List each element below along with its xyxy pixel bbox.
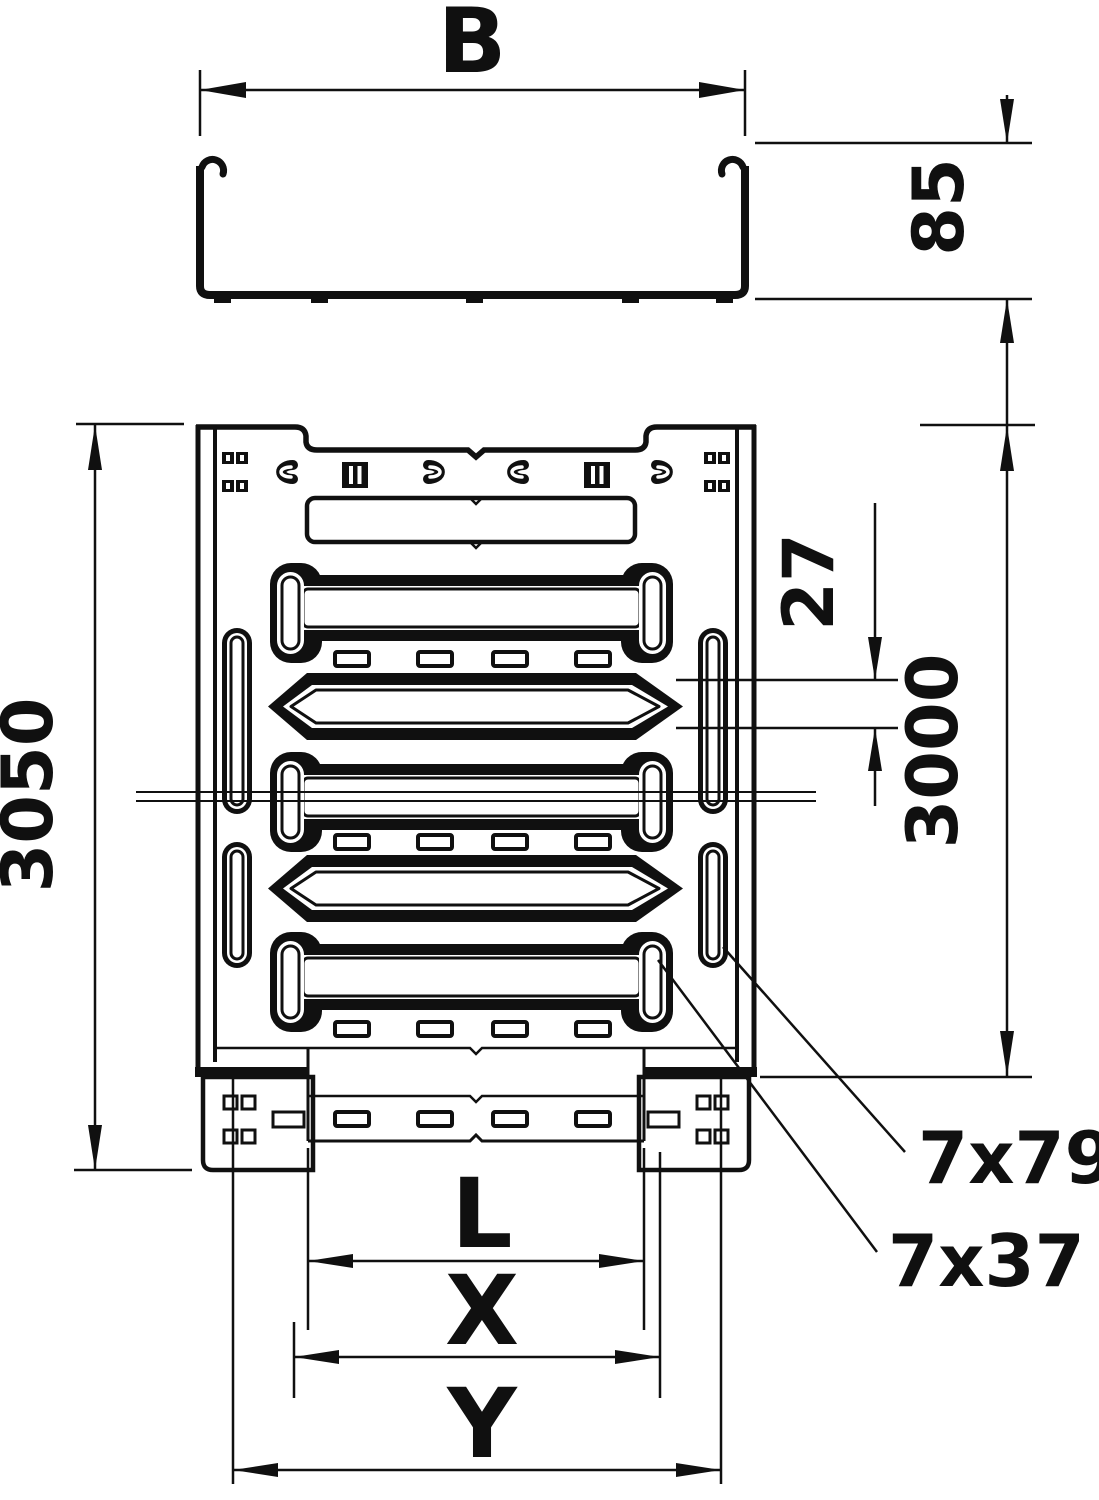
dimension-3050-label: 3050 (0, 698, 69, 893)
right-hook-rim (721, 159, 743, 174)
leader-7x79-label: 7x79 (918, 1116, 1099, 1200)
dimension-y-label: Y (446, 1368, 518, 1480)
dimension-b: B (200, 0, 745, 136)
dimension-l-label: L (451, 1158, 512, 1270)
tray-end-line (216, 1048, 736, 1054)
coupler-bottom-edge (308, 1135, 644, 1141)
dimension-3050: 3050 (0, 424, 192, 1170)
cable-tray-drawing: B 85 (0, 0, 1099, 1500)
dimension-85: 85 (755, 95, 1032, 425)
press-out-glyph-row (281, 462, 668, 488)
leader-7x37-label: 7x37 (888, 1219, 1085, 1303)
leader-7x79: 7x79 (723, 947, 1099, 1200)
cross-section-view (200, 159, 745, 303)
dimension-27-label: 27 (768, 533, 850, 630)
small-slot-row-coupler (335, 1112, 610, 1126)
left-hook-rim (202, 159, 224, 174)
slot-row-hexagon-2 (268, 855, 683, 922)
small-slot-row-2 (335, 835, 610, 849)
dimension-3000-label: 3000 (892, 654, 974, 849)
dimension-b-label: B (438, 0, 507, 94)
slot-row-dogbone-1 (270, 563, 673, 663)
technical-drawing-page: B 85 (0, 0, 1099, 1500)
tray-top-edge (196, 427, 756, 457)
profile-outline (200, 166, 745, 295)
small-slot-row-3 (335, 1022, 610, 1036)
slot-row-dogbone-3 (270, 932, 673, 1032)
small-slot-row-1 (335, 652, 610, 666)
label-plate (307, 498, 635, 548)
dimension-x-label: X (445, 1255, 519, 1367)
coupler-section (195, 1048, 757, 1170)
plan-view (136, 425, 816, 1170)
dimension-85-label: 85 (898, 158, 980, 255)
slot-row-hexagon-1 (268, 673, 683, 740)
dimension-3000: 3000 (760, 425, 1035, 1077)
